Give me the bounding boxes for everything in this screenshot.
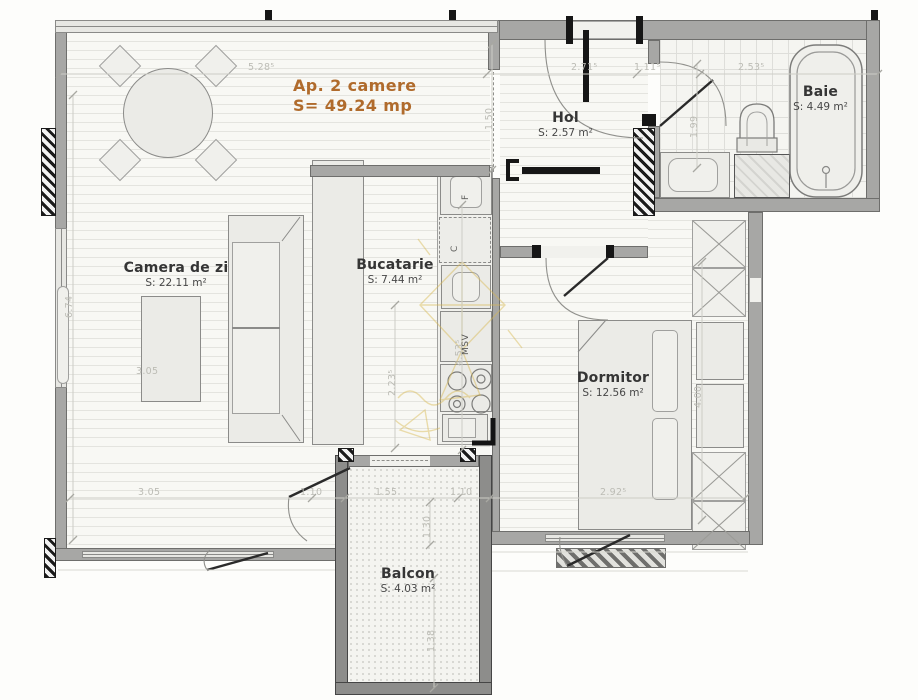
living-floor-lower bbox=[67, 455, 340, 548]
kitchen-tall-unit bbox=[312, 160, 364, 445]
room-name: Bucatarie bbox=[345, 257, 445, 273]
room-area: S: 4.03 m² bbox=[360, 583, 456, 595]
dim-balcony-door: 1.30 bbox=[422, 516, 433, 538]
dim-balcony-right-gap: 1.10 bbox=[450, 487, 472, 498]
door-frame-bracket bbox=[506, 177, 519, 181]
room-label-bath: Baie S: 4.49 m² bbox=[778, 84, 863, 113]
section-tick bbox=[449, 10, 456, 20]
dim-balcony-width: 1.55 bbox=[375, 487, 397, 498]
terrace-sill bbox=[556, 548, 666, 568]
dim-bath-depth: 1.99 bbox=[689, 116, 700, 138]
room-name: Dormitor bbox=[553, 370, 673, 386]
room-label-hall: Hol S: 2.57 m² bbox=[518, 110, 613, 139]
wall-kitchen-bedroom bbox=[492, 178, 500, 532]
balcony-wall-left bbox=[335, 455, 348, 695]
oven-label: C bbox=[450, 245, 460, 252]
dim-balcony-left-gap: 1.10 bbox=[300, 487, 322, 498]
room-label-bedroom: Dormitor S: 12.56 m² bbox=[553, 370, 673, 399]
window-bottom-left bbox=[82, 551, 274, 558]
room-area: S: 22.11 m² bbox=[106, 277, 246, 289]
nightstand bbox=[696, 322, 744, 380]
wardrobe bbox=[692, 220, 746, 268]
room-name: Baie bbox=[778, 84, 863, 100]
door-frame-bracket bbox=[506, 159, 519, 163]
wall-kitchen-hall bbox=[310, 165, 490, 177]
dim-bedroom-width: 2.92⁵ bbox=[600, 487, 626, 498]
wardrobe bbox=[692, 452, 746, 501]
kitchen-sink-basin bbox=[452, 272, 480, 302]
wardrobe bbox=[692, 268, 746, 317]
kitchen-door-bar bbox=[522, 167, 600, 174]
dim-living-width-mid: 3.05 bbox=[136, 366, 158, 377]
stove bbox=[440, 364, 492, 412]
plan-title: Ap. 2 camere S= 49.24 mp bbox=[293, 76, 417, 116]
bedroom-door-post bbox=[606, 245, 614, 258]
dim-hall-depth: 1.50 bbox=[484, 108, 495, 130]
room-name: Balcon bbox=[360, 566, 456, 582]
dim-balcony-depth: 1.38 bbox=[426, 630, 437, 652]
dim-living-width: 3.05 bbox=[138, 487, 160, 498]
dim-kitchen-length: 4.53⁵ bbox=[454, 340, 465, 366]
washing-machine bbox=[734, 154, 790, 198]
bedroom-door-opening bbox=[540, 246, 608, 258]
room-area: S: 4.49 m² bbox=[778, 101, 863, 113]
room-area: S: 2.57 m² bbox=[518, 127, 613, 139]
kitchen-sink-low-basin bbox=[448, 418, 476, 438]
oven bbox=[439, 217, 491, 263]
fridge-label: F bbox=[461, 194, 471, 200]
balcony-door-opening bbox=[370, 456, 430, 466]
balcony-jamb bbox=[460, 448, 476, 462]
coffee-table bbox=[141, 296, 201, 402]
sofa-seat-divider bbox=[232, 327, 280, 329]
window-bedroom bbox=[545, 534, 665, 542]
dining-table bbox=[123, 68, 213, 158]
bedroom-door-post bbox=[532, 245, 541, 258]
wall-hall-bath-top bbox=[648, 40, 660, 64]
section-tick bbox=[871, 10, 878, 20]
entrance-opening bbox=[572, 22, 636, 38]
dim-top-bath: 2.53⁵ bbox=[738, 62, 764, 73]
entrance-door-post bbox=[636, 16, 643, 44]
room-name: Camera de zi bbox=[106, 260, 246, 276]
dim-kitchen-width: 2.23⁵ bbox=[387, 370, 398, 396]
wall-bedroom-right bbox=[748, 212, 763, 545]
balcony-opening-dash bbox=[372, 460, 428, 461]
wall-bath-bottom bbox=[648, 198, 880, 212]
dim-left-height: 6.74 bbox=[64, 296, 75, 318]
wall-bath-right bbox=[866, 20, 880, 212]
structural-column bbox=[633, 128, 655, 216]
room-label-kitchen: Bucatarie S: 7.44 m² bbox=[345, 257, 445, 286]
room-label-balcony: Balcon S: 4.03 m² bbox=[360, 566, 456, 595]
wall-bedroom-right-gap bbox=[750, 278, 761, 302]
section-mark-left-low bbox=[44, 538, 56, 578]
balcony-wall-right bbox=[479, 455, 492, 695]
entrance-door-post bbox=[566, 16, 573, 44]
wall-top-right bbox=[498, 20, 880, 40]
pillow bbox=[652, 418, 678, 500]
room-name: Hol bbox=[518, 110, 613, 126]
floor-plan: Ap. 2 camere S= 49.24 mp Camera de zi S:… bbox=[0, 0, 918, 700]
balcony-wall-bottom bbox=[335, 682, 492, 695]
room-area: S: 7.44 m² bbox=[345, 274, 445, 286]
bath-sink-basin bbox=[668, 158, 718, 192]
dim-top-hall: 2.71⁵ bbox=[571, 62, 597, 73]
dim-bedroom-height: 4.00 bbox=[693, 386, 704, 408]
apartment-area: S= 49.24 mp bbox=[293, 96, 417, 116]
wall-top-left-glazed bbox=[55, 20, 498, 33]
fridge-inner bbox=[450, 176, 482, 208]
balcony-jamb bbox=[338, 448, 354, 462]
dim-top-living: 5.28⁵ bbox=[248, 62, 274, 73]
bath-door-post bbox=[642, 114, 656, 126]
room-area: S: 12.56 m² bbox=[553, 387, 673, 399]
room-label-living: Camera de zi S: 22.11 m² bbox=[106, 260, 246, 289]
dim-top-entry: 1.11⁵ bbox=[634, 62, 660, 73]
section-tick bbox=[265, 10, 272, 20]
section-mark-left bbox=[41, 128, 56, 216]
apartment-name: Ap. 2 camere bbox=[293, 76, 417, 96]
